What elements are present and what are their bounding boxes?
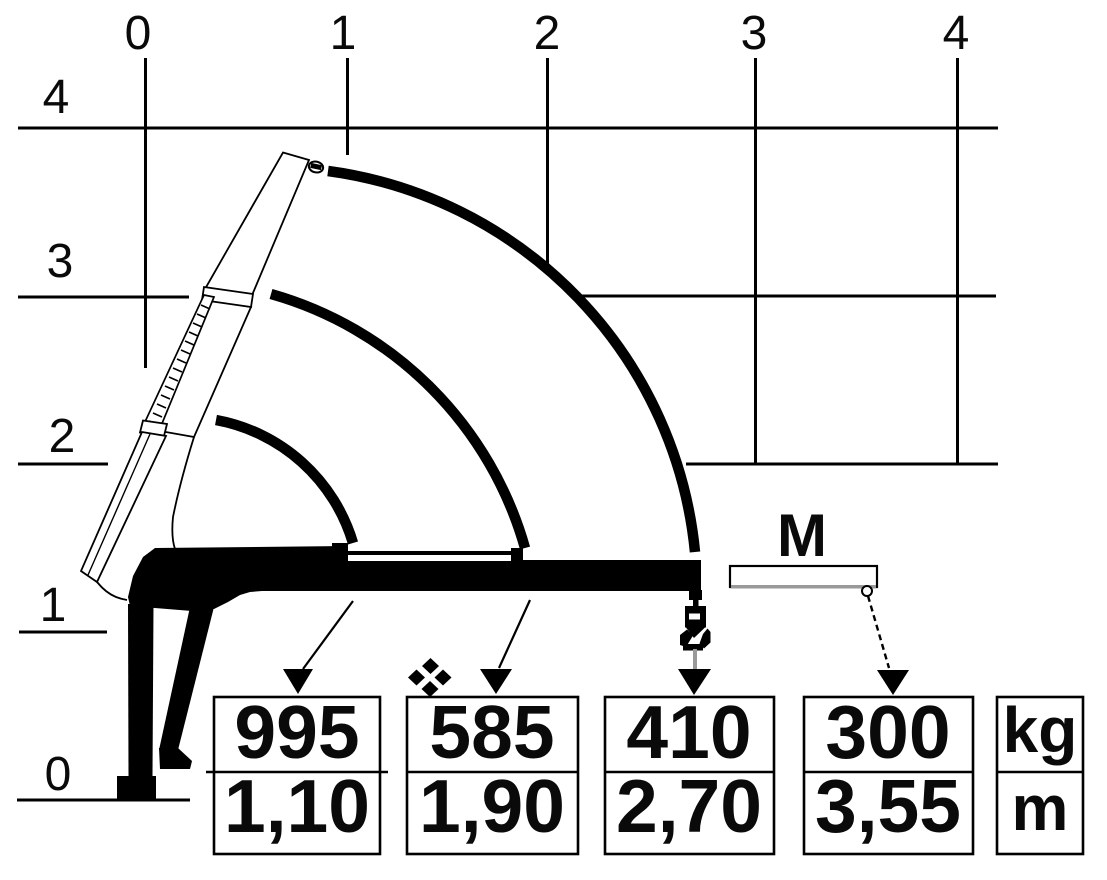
svg-text:3: 3 (47, 235, 74, 288)
svg-text:4: 4 (943, 7, 970, 60)
svg-text:m: m (1012, 772, 1069, 844)
svg-text:M: M (777, 502, 827, 569)
svg-text:3,55: 3,55 (815, 764, 961, 848)
svg-text:2: 2 (534, 7, 561, 60)
svg-text:kg: kg (1003, 694, 1078, 766)
svg-text:0: 0 (45, 748, 72, 801)
svg-text:4: 4 (43, 71, 70, 124)
svg-text:0: 0 (125, 7, 152, 60)
svg-text:300: 300 (825, 690, 950, 774)
svg-text:3: 3 (741, 7, 768, 60)
svg-text:585: 585 (429, 690, 554, 774)
svg-text:1: 1 (330, 7, 357, 60)
svg-text:1,90: 1,90 (419, 764, 565, 848)
svg-text:1,10: 1,10 (224, 764, 370, 848)
svg-text:2: 2 (49, 410, 76, 463)
svg-text:410: 410 (626, 690, 751, 774)
svg-text:1: 1 (40, 579, 67, 632)
svg-text:2,70: 2,70 (616, 764, 762, 848)
svg-text:995: 995 (234, 690, 359, 774)
